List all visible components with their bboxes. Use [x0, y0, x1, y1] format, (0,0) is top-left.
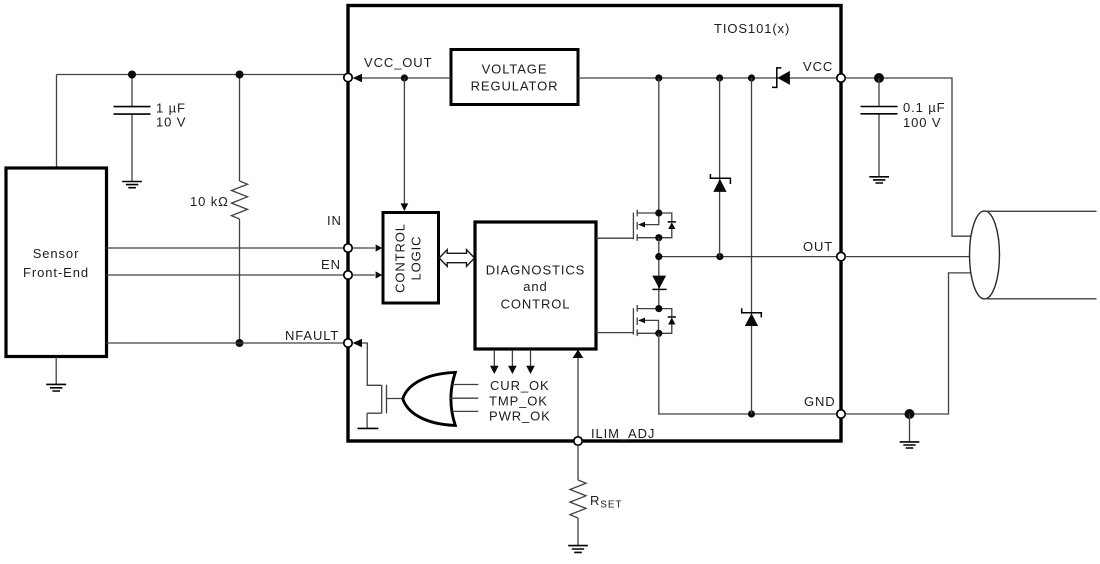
- svg-text:EN: EN: [321, 257, 341, 272]
- svg-text:NFAULT: NFAULT: [285, 328, 339, 343]
- svg-text:CONTROL: CONTROL: [501, 297, 571, 312]
- svg-text:DIAGNOSTICS: DIAGNOSTICS: [486, 263, 585, 278]
- svg-text:10 V: 10 V: [156, 115, 186, 130]
- svg-text:TIOS101(x): TIOS101(x): [714, 21, 790, 36]
- svg-text:and: and: [523, 279, 547, 294]
- svg-text:1 µF: 1 µF: [156, 101, 186, 116]
- svg-text:CONTROL: CONTROL: [393, 223, 408, 293]
- svg-text:LOGIC: LOGIC: [409, 236, 424, 281]
- svg-text:10 kΩ: 10 kΩ: [190, 194, 229, 209]
- svg-text:PWR_OK: PWR_OK: [489, 409, 551, 424]
- svg-text:GND: GND: [804, 394, 836, 409]
- svg-text:VCC: VCC: [803, 59, 833, 74]
- svg-text:Sensor: Sensor: [33, 246, 80, 261]
- svg-text:OUT: OUT: [803, 239, 833, 254]
- svg-text:IN: IN: [327, 213, 342, 228]
- svg-text:0.1 µF: 0.1 µF: [903, 100, 946, 115]
- svg-text:TMP_OK: TMP_OK: [489, 394, 548, 409]
- svg-text:RSET: RSET: [590, 493, 622, 511]
- svg-text:100 V: 100 V: [903, 115, 941, 130]
- svg-text:Front-End: Front-End: [23, 265, 89, 280]
- svg-text:REGULATOR: REGULATOR: [471, 79, 559, 94]
- svg-text:VOLTAGE: VOLTAGE: [482, 62, 548, 77]
- svg-text:ILIM_ADJ: ILIM_ADJ: [591, 426, 655, 441]
- svg-text:VCC_OUT: VCC_OUT: [364, 55, 432, 70]
- svg-text:CUR_OK: CUR_OK: [490, 378, 550, 393]
